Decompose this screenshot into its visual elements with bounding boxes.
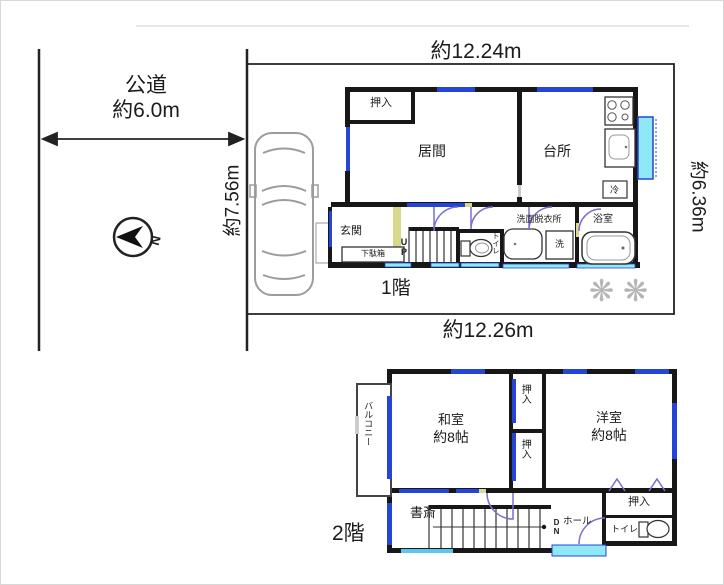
lot-dim-bottom: 約12.26m — [418, 319, 558, 343]
compass-icon — [114, 218, 152, 256]
room-washroom: 洗面脱衣所 — [503, 214, 575, 224]
bay-window — [638, 117, 653, 179]
kitchen-door-gap — [518, 185, 521, 197]
lot-dim-top: 約12.24m — [406, 40, 546, 64]
stove-icon — [605, 97, 633, 125]
room-western-size: 約8帖 — [574, 428, 644, 444]
lot-dim-left: 約7.56m — [222, 156, 243, 246]
stairs-down — [429, 505, 546, 548]
stairs-down-label: DN — [552, 519, 561, 537]
room-living: 居間 — [402, 144, 462, 160]
room-western: 洋室 — [579, 411, 639, 426]
road-width-label: 約6.0m — [103, 99, 189, 123]
hall-door-jamb — [479, 489, 486, 493]
bathtub-icon — [582, 232, 635, 264]
washer-label: 洗 — [555, 239, 564, 249]
room-bath: 浴室 — [593, 214, 613, 225]
entrance-porch — [316, 223, 328, 263]
room-toilet-2f: トイレ — [611, 524, 638, 534]
road-width-arrow — [43, 133, 243, 145]
room-shoe-cabinet: 下駄箱 — [342, 250, 404, 259]
kitchen-sink-icon — [605, 129, 635, 167]
room-toilet-1f: トイレ — [491, 232, 499, 262]
room-closet-1f: 押入 — [351, 97, 411, 109]
floor2-label: 2階 — [332, 522, 365, 546]
washbasin-icon — [504, 229, 542, 259]
snowflake-icon: ❋ — [623, 275, 648, 309]
room-closet-right: 押入 — [609, 496, 669, 508]
fridge-label: 冷 — [610, 185, 619, 195]
room-closet-lower: 押入 — [519, 439, 530, 475]
room-kitchen: 台所 — [527, 144, 587, 160]
car-icon — [250, 133, 318, 295]
room-closet-upper: 押入 — [519, 384, 530, 420]
toilet-door-jamb — [465, 203, 472, 207]
room-entrance: 玄関 — [340, 225, 362, 237]
road-name-label: 公道 — [116, 74, 176, 98]
lot-dim-right: 約6.36m — [687, 152, 708, 242]
room-balcony: バルコニー — [363, 401, 373, 483]
stairs-up-label: UP — [399, 237, 409, 257]
room-japanese-size: 約8帖 — [416, 430, 486, 446]
floor1-label: 1階 — [381, 278, 411, 299]
room-study: 書斎 — [410, 506, 436, 521]
snowflake-icon: ❋ — [589, 275, 614, 309]
room-japanese: 和室 — [421, 413, 481, 428]
toilet-icon-2f — [639, 521, 669, 538]
room-hall: ホール — [563, 517, 592, 528]
floor-plan-page: 公道 約6.0m N 約12.24m 約6.36m 約12.26m 約7.56m… — [0, 0, 724, 585]
toilet-icon-1f — [461, 240, 492, 257]
stairs-up — [409, 227, 451, 262]
